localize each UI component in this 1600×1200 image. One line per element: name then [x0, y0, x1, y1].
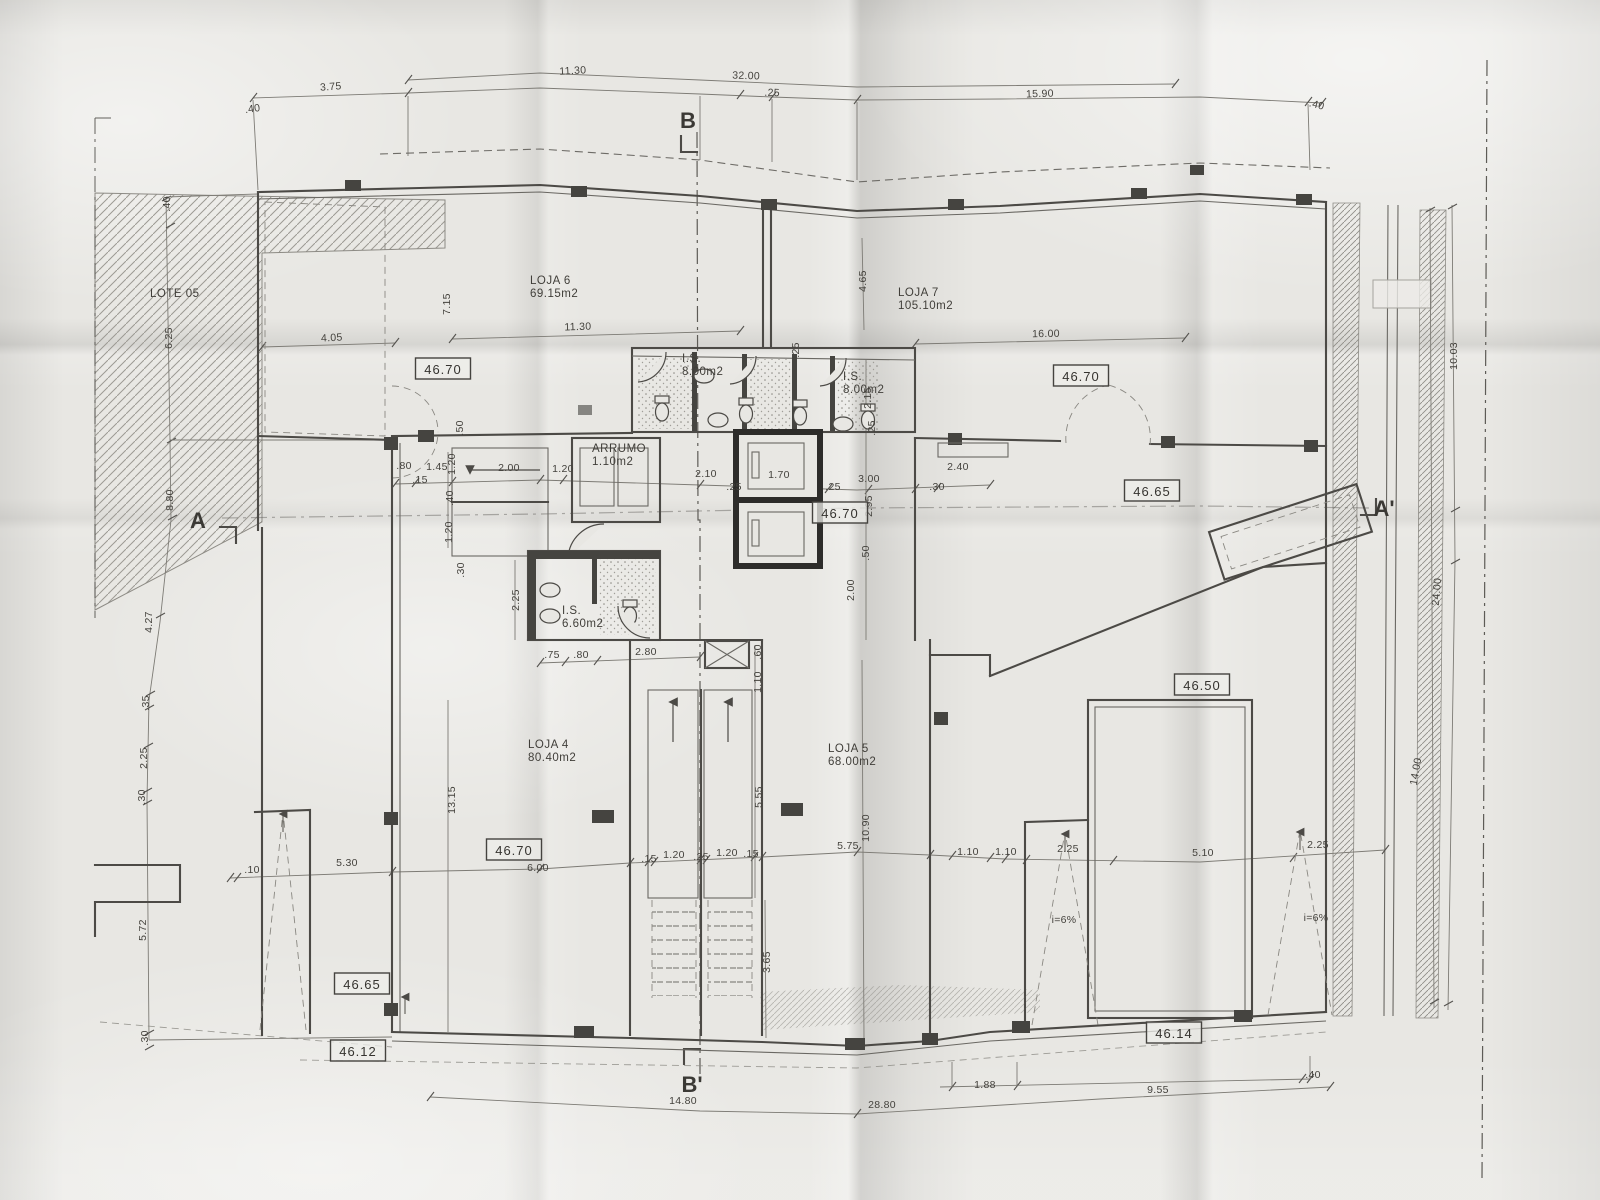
dimension-label: .30 — [929, 481, 945, 493]
dimension-label: 5.75 — [837, 840, 859, 852]
dimension-label: .40 — [444, 490, 456, 506]
dimension-label: 5.72 — [137, 919, 149, 941]
level-badge: 46.12 — [339, 1044, 377, 1059]
dimension-label: .10 — [244, 864, 260, 876]
dimension-label: 7.15 — [441, 293, 453, 315]
level-badge: 46.50 — [1183, 678, 1221, 693]
dimension-label: 2.80 — [635, 646, 657, 658]
room-label: ARRUMO1.10m2 — [592, 443, 646, 468]
dimension-label: 8.80 — [164, 489, 176, 511]
dimension-label: 10.03 — [1448, 342, 1460, 370]
dimension-label: 5.10 — [1192, 847, 1214, 859]
dimension-label: .25 — [866, 420, 878, 436]
dimension-label: 1.70 — [768, 469, 790, 481]
dimension-label: 2.25 — [1057, 843, 1079, 855]
dimension-label: 2.00 — [845, 579, 857, 601]
dimension-label: .25 — [790, 342, 802, 358]
dimension-label: 1.20 — [446, 453, 458, 475]
dimension-label: 5.55 — [753, 786, 765, 808]
dimension-label: 28.80 — [868, 1099, 896, 1111]
dimension-label: .50 — [454, 420, 466, 436]
dimension-label: 1.10 — [957, 846, 979, 858]
dimension-label: .80 — [573, 649, 589, 661]
dimension-label: 1.45 — [426, 461, 448, 473]
dimension-label: 13.15 — [446, 786, 458, 814]
dimension-label: 4.27 — [143, 611, 155, 633]
sink-fixture — [708, 413, 728, 427]
section-marker: A' — [1373, 496, 1394, 521]
level-badge: 46.70 — [821, 506, 859, 521]
level-badge: 46.70 — [495, 843, 533, 858]
room-label: LOTE 05 — [150, 288, 200, 300]
dimension-label: 6.25 — [163, 327, 175, 349]
dimension-label: 11.30 — [564, 321, 591, 334]
sink-fixture — [833, 417, 853, 431]
dimension-label: 5.30 — [336, 857, 358, 869]
dimension-label: 2.25 — [138, 747, 150, 769]
dimension-label: .25 — [726, 481, 742, 493]
level-badge: 46.65 — [1133, 484, 1171, 499]
dimension-label: .15 — [641, 853, 657, 865]
dimension-label: 1.20 — [663, 849, 685, 861]
dimension-label: 2.25 — [510, 589, 522, 611]
floor-plan-drawing: .403.7511.3032.00.2515.90.40.406.258.804… — [0, 0, 1600, 1200]
dimension-label: 16.00 — [1032, 328, 1060, 340]
room-label: LOJA 669.15m2 — [530, 275, 578, 300]
level-badge: 46.65 — [343, 977, 381, 992]
dimension-label: .25 — [764, 87, 780, 100]
level-badge: 46.70 — [1062, 369, 1100, 384]
dimension-label: 3.65 — [761, 951, 773, 973]
room-label: LOJA 7105.10m2 — [898, 287, 953, 312]
photographed-floor-plan-sheet: .403.7511.3032.00.2515.90.40.406.258.804… — [0, 0, 1600, 1200]
dimension-label: 1.20 — [552, 463, 574, 475]
dimension-label: .15 — [412, 474, 428, 486]
dimension-label: .35 — [140, 695, 152, 711]
dimension-label: 1.88 — [974, 1079, 996, 1091]
dimension-label: 32.00 — [732, 70, 760, 83]
dimension-label: 3.75 — [320, 80, 342, 93]
dimension-label: 4.65 — [857, 270, 869, 292]
dimension-label: .15 — [743, 848, 759, 860]
dimension-label: .30 — [455, 562, 467, 578]
dimension-label: 15.90 — [1026, 88, 1054, 101]
dimension-label: .80 — [396, 460, 412, 472]
section-marker: A — [190, 508, 206, 533]
dimension-label: 3.00 — [858, 473, 880, 485]
section-lines — [220, 132, 1376, 1082]
dimension-label: 1.10 — [995, 846, 1017, 858]
structural-columns — [345, 165, 1318, 1050]
dimension-label: i=6% — [1304, 912, 1329, 924]
dimension-label: 2.25 — [1307, 839, 1329, 851]
level-badge: 46.14 — [1155, 1026, 1193, 1041]
dimension-label: .50 — [860, 545, 872, 561]
dimension-label: 11.30 — [559, 64, 587, 77]
dimension-label: .40 — [1305, 1069, 1321, 1081]
room-label: I.S.6.60m2 — [562, 605, 603, 630]
dimension-label: 1.20 — [443, 521, 455, 543]
dimension-label: 10.90 — [860, 814, 872, 842]
dimension-label: .30 — [136, 789, 148, 805]
dimension-label: 9.55 — [1147, 1084, 1169, 1096]
dimension-label: 2.00 — [498, 462, 520, 474]
dimension-label: .25 — [825, 481, 841, 493]
dimension-label: .75 — [544, 649, 560, 661]
dimension-label: .25 — [693, 851, 709, 863]
dimension-label: .60 — [752, 644, 764, 660]
dimension-label: 1.20 — [716, 847, 738, 859]
dimension-label: .40 — [161, 196, 173, 212]
dimension-label: .30 — [139, 1030, 151, 1046]
dimension-label: 6.00 — [527, 862, 549, 874]
level-badge: 46.70 — [424, 362, 462, 377]
dimension-label: 24.00 — [1430, 577, 1444, 606]
room-label: LOJA 568.00m2 — [828, 743, 876, 768]
dimension-label: 1.10 — [752, 671, 764, 693]
dimension-label: .40 — [1308, 97, 1326, 112]
dimension-label: .40 — [244, 102, 261, 116]
dimension-label: 4.05 — [321, 331, 343, 344]
dimension-label: 2.10 — [695, 468, 717, 480]
dimension-label: i=6% — [1052, 914, 1077, 926]
section-marker: B' — [681, 1072, 702, 1097]
room-label: LOJA 480.40m2 — [528, 739, 576, 764]
section-marker: B — [680, 108, 696, 133]
dimension-label: 2.40 — [947, 461, 969, 473]
